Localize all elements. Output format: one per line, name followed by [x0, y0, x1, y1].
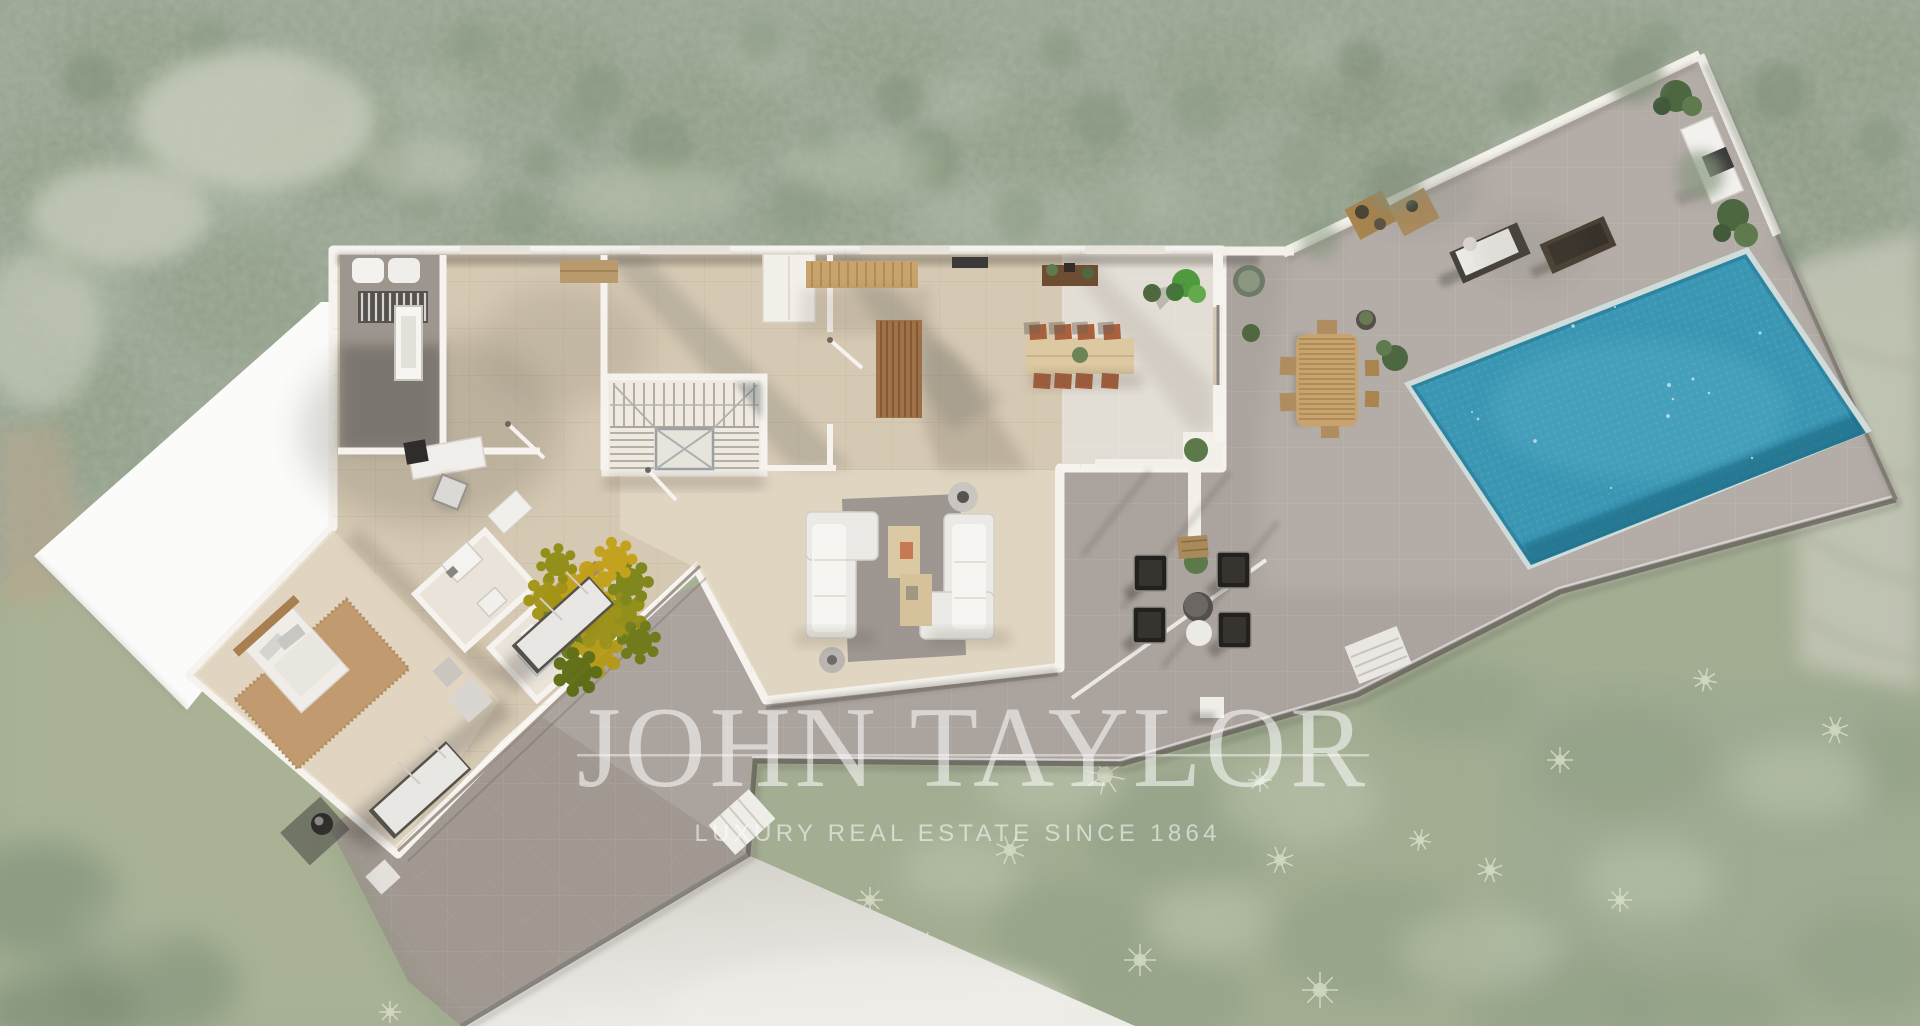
svg-text:LUXURY REAL ESTATE SINCE 1864: LUXURY REAL ESTATE SINCE 1864 [695, 820, 1224, 847]
svg-text:JOHN TAYLOR: JOHN TAYLOR [577, 684, 1369, 811]
